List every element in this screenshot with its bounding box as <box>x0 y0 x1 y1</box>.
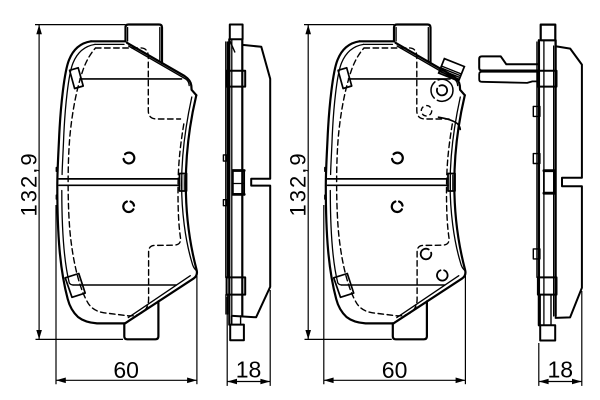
svg-text:60: 60 <box>382 357 408 383</box>
svg-text:132,9: 132,9 <box>286 151 311 216</box>
svg-text:60: 60 <box>113 357 139 383</box>
svg-text:18: 18 <box>236 356 262 382</box>
svg-text:132,9: 132,9 <box>17 151 42 216</box>
svg-text:18: 18 <box>548 356 574 382</box>
